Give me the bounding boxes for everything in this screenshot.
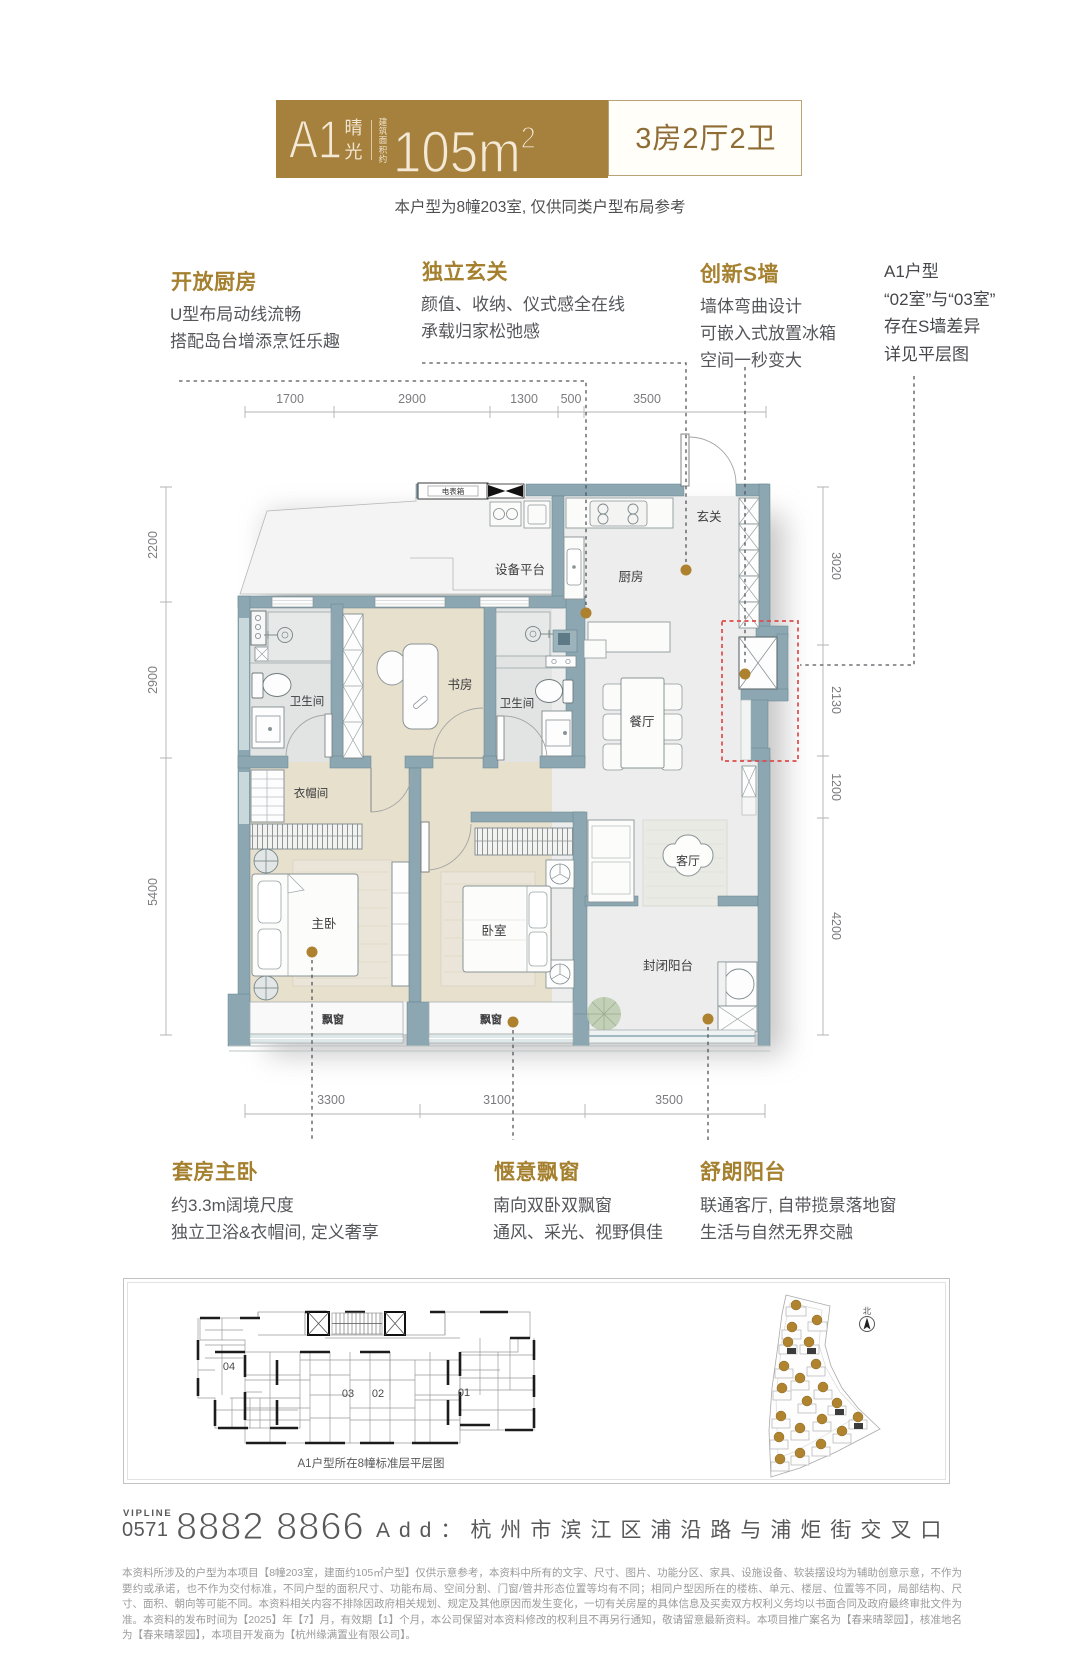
- svg-text:电表箱: 电表箱: [442, 486, 465, 496]
- svg-text:餐厅: 餐厅: [629, 714, 654, 729]
- svg-text:5400: 5400: [146, 878, 160, 906]
- svg-text:书房: 书房: [447, 677, 472, 692]
- svg-text:主卧: 主卧: [311, 917, 336, 931]
- svg-text:02: 02: [372, 1388, 384, 1400]
- svg-text:封闭阳台: 封闭阳台: [643, 958, 693, 973]
- svg-text:设备平台: 设备平台: [495, 562, 545, 577]
- svg-text:厨房: 厨房: [618, 569, 643, 584]
- svg-text:北: 北: [863, 1306, 872, 1316]
- svg-text:2130: 2130: [829, 686, 843, 714]
- svg-text:2900: 2900: [146, 666, 160, 694]
- svg-text:3500: 3500: [633, 392, 661, 406]
- svg-text:4200: 4200: [829, 912, 843, 940]
- svg-text:1200: 1200: [829, 773, 843, 801]
- svg-text:卧室: 卧室: [481, 923, 506, 938]
- svg-text:01: 01: [458, 1387, 470, 1399]
- svg-text:3020: 3020: [829, 552, 843, 580]
- svg-text:3100: 3100: [483, 1093, 511, 1107]
- svg-text:衣帽间: 衣帽间: [294, 786, 329, 800]
- svg-text:飘窗: 飘窗: [480, 1012, 502, 1026]
- svg-text:卫生间: 卫生间: [290, 694, 325, 708]
- svg-text:客厅: 客厅: [676, 853, 700, 868]
- svg-text:500: 500: [561, 392, 582, 406]
- svg-text:2900: 2900: [398, 392, 426, 406]
- svg-text:3300: 3300: [317, 1093, 345, 1107]
- svg-text:1300: 1300: [510, 392, 538, 406]
- svg-text:1700: 1700: [276, 392, 304, 406]
- svg-text:03: 03: [342, 1388, 354, 1400]
- svg-text:飘窗: 飘窗: [322, 1012, 344, 1026]
- svg-text:3500: 3500: [655, 1093, 683, 1107]
- svg-text:2200: 2200: [146, 531, 160, 559]
- svg-text:玄关: 玄关: [696, 509, 721, 524]
- svg-text:04: 04: [223, 1361, 235, 1373]
- svg-text:卫生间: 卫生间: [500, 696, 535, 710]
